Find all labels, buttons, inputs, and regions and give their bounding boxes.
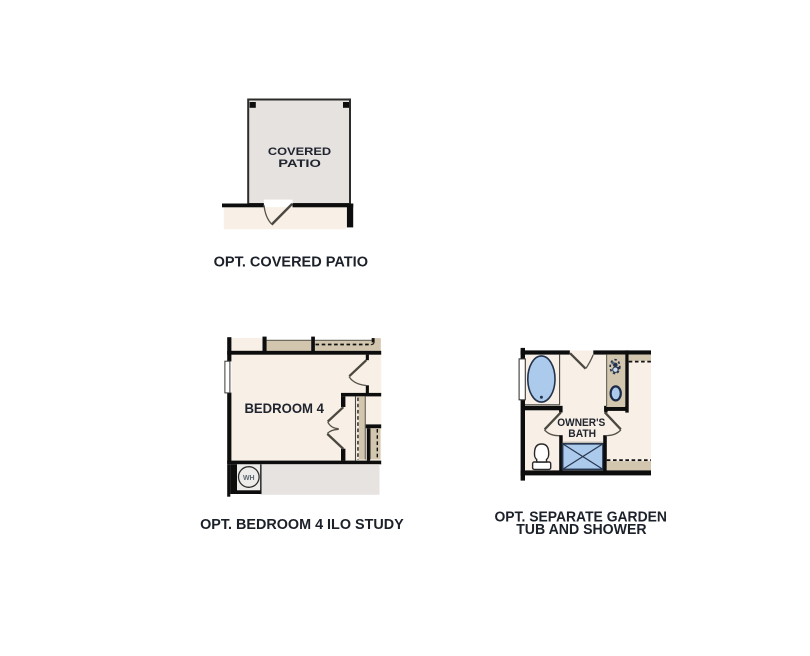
- svg-text:OPT. BEDROOM 4 ILO STUDY: OPT. BEDROOM 4 ILO STUDY: [200, 517, 404, 533]
- svg-text:OPT. COVERED PATIO: OPT. COVERED PATIO: [214, 254, 368, 270]
- svg-text:BEDROOM 4: BEDROOM 4: [244, 401, 324, 416]
- svg-text:BATH: BATH: [568, 428, 596, 440]
- svg-text:TUB AND SHOWER: TUB AND SHOWER: [516, 522, 647, 538]
- svg-text:OWNER'S: OWNER'S: [557, 417, 605, 429]
- svg-text:COVERED: COVERED: [268, 146, 331, 158]
- svg-text:PATIO: PATIO: [278, 158, 321, 170]
- svg-text:WH: WH: [243, 475, 255, 482]
